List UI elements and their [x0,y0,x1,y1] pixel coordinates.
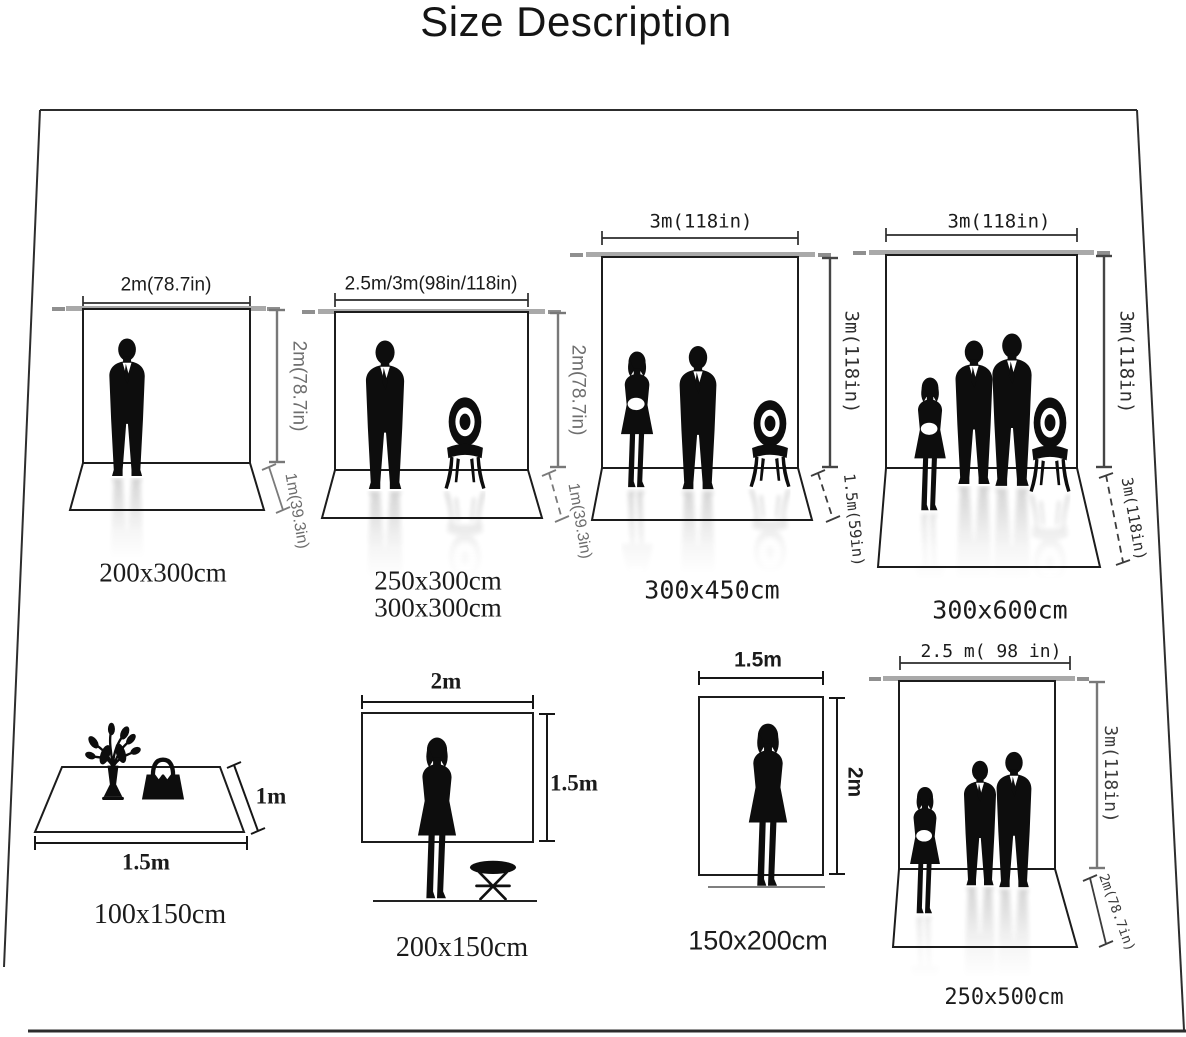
rug [35,767,244,832]
p3-width-label: 3m(118in) [650,213,753,232]
handbag-silhouette [142,760,184,800]
panel-100x150 [35,723,265,850]
backdrop-wall [83,309,250,463]
p6-height-label: 1.5m [550,772,598,795]
p8-height-label: 3m(118in) [1101,725,1119,823]
p3-height-label: 3m(118in) [842,311,861,414]
p7-height-label: 2m [845,767,866,797]
panel-200x150 [362,695,555,901]
p3-size-label: 300x450cm [644,578,779,603]
panel-300x450 [570,231,840,634]
backdrop-wall [335,312,528,470]
p8-size-label: 250x500cm [944,987,1063,1009]
size-description-diagram: Size Description 2m(78.7in) 2m(78.7in) 1… [0,0,1186,1037]
height-dimension-line [269,310,285,462]
p4-size-label: 300x600cm [932,598,1067,623]
panel-300x600 [853,228,1130,647]
p7-size-label: 150x200cm [688,928,828,955]
p5-size-label: 100x150cm [94,901,226,929]
p2-width-label: 2.5m/3m(98in/118in) [345,275,518,294]
backdrop-floor [322,470,542,518]
p5-depth-label: 1m [256,785,287,808]
p5-width-label: 1.5m [122,851,170,874]
page-title: Size Description [420,0,731,46]
width-dimension-line [35,836,247,850]
p4-width-label: 3m(118in) [948,213,1051,232]
panel-250x500 [869,656,1113,1037]
p6-width-label: 2m [431,670,462,693]
p2-size-label-1: 250x300cm [374,568,502,595]
p4-height-label: 3m(118in) [1117,311,1136,414]
p7-width-label: 1.5m [734,650,782,671]
panel-150x200 [699,671,845,887]
p1-height-label: 2m(78.7in) [290,341,309,432]
backdrop-floor [70,463,264,510]
diagram-artwork [0,0,1186,1037]
p8-width-label: 2.5 m( 98 in) [921,643,1062,661]
p2-size-label-2: 300x300cm [374,595,502,622]
stool-silhouette [470,861,516,899]
p2-height-label: 2m(78.7in) [569,345,588,436]
p1-size-label: 200x300cm [99,560,227,587]
p6-size-label: 200x150cm [396,934,528,962]
p1-width-label: 2m(78.7in) [121,276,212,295]
